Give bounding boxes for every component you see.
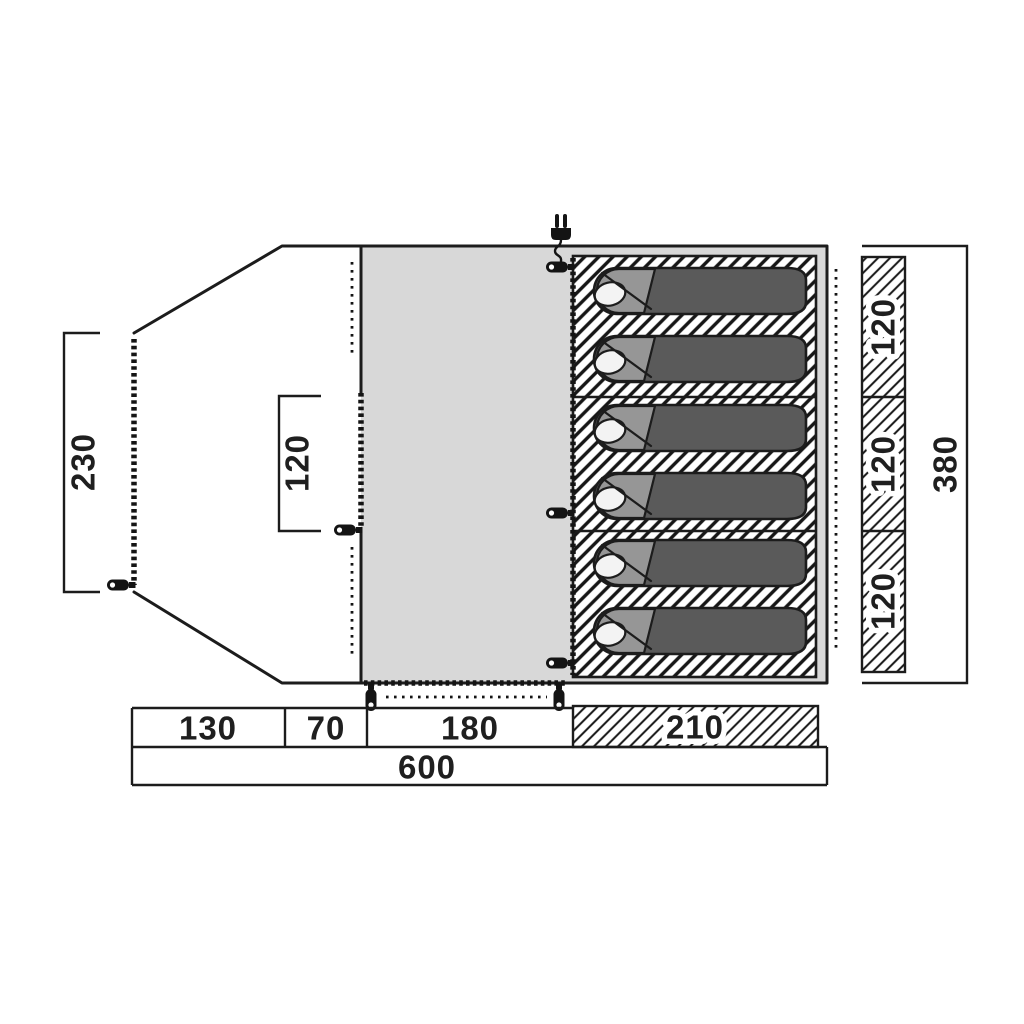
dim-label-sleeping-length: 210 <box>666 709 724 746</box>
zipper-pull-icon <box>107 580 136 591</box>
tent-floorplan-diagram: 230 120 120 120 120 380 130 70 180 210 6… <box>0 0 1024 1024</box>
dim-berths: 120 120 120 <box>862 257 905 672</box>
dim-label-berth-1: 120 <box>865 298 902 356</box>
sleeping-bag <box>592 268 806 314</box>
sleeping-bag <box>592 608 806 654</box>
zipper-pull-icon <box>554 683 565 712</box>
sleeping-bag <box>592 405 806 451</box>
floorplan-svg: 230 120 120 120 120 380 130 70 180 210 6… <box>0 0 1024 1024</box>
sleeping-bag <box>592 336 806 382</box>
dim-label-porch-door-width: 120 <box>279 434 316 492</box>
zipper-pull-icon <box>366 683 377 712</box>
sleeping-bag <box>592 473 806 519</box>
dim-label-porch-front: 130 <box>179 710 237 747</box>
dim-label-porch-rear: 70 <box>307 710 346 747</box>
dim-porch-depth: 230 <box>64 333 102 592</box>
dim-label-berth-3: 120 <box>865 572 902 630</box>
dim-label-berth-2: 120 <box>865 435 902 493</box>
dim-bottom-rows: 130 70 180 210 600 <box>132 706 827 786</box>
dim-label-total-length: 600 <box>398 749 456 786</box>
sleeping-bag <box>592 540 806 586</box>
dim-label-porch-depth: 230 <box>65 433 102 491</box>
dim-label-living-length: 180 <box>441 710 499 747</box>
sleeping-compartment <box>573 256 816 677</box>
dim-label-inner-width: 380 <box>927 435 964 493</box>
